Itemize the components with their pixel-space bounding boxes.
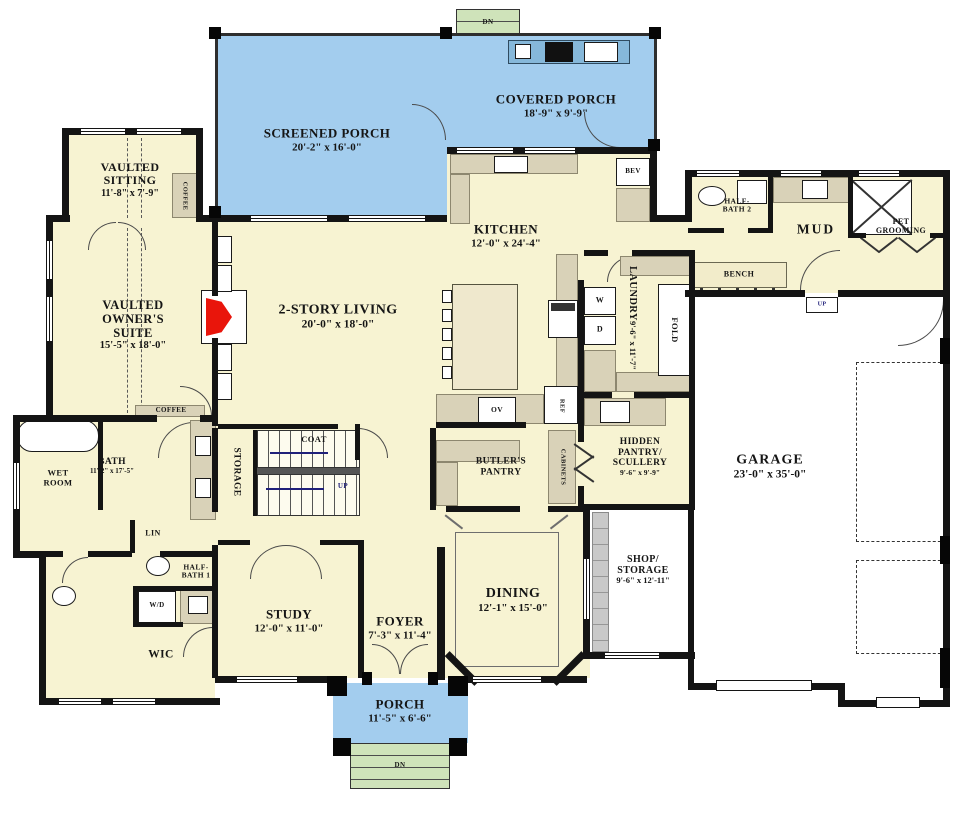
screened-porch-wall	[215, 33, 449, 36]
room-dims: 12'-1" x 15'-0"	[478, 602, 548, 614]
washer-text: W	[596, 297, 604, 306]
pantry-sink	[600, 401, 630, 423]
room-label-foyer: FOYER 7'-3" x 11'-4"	[368, 615, 432, 642]
wall	[355, 424, 360, 460]
room-name: HALF-BATH 2	[714, 198, 760, 215]
label-dryer: D	[597, 326, 603, 335]
room-name: 2-STORY LIVING	[278, 303, 397, 319]
wall	[88, 551, 132, 557]
label-dn-top: DN	[483, 19, 494, 27]
room-name: VAULTED OWNER'S SUITE	[83, 298, 183, 340]
window	[250, 215, 328, 222]
wall	[133, 586, 138, 627]
wall	[436, 422, 526, 428]
butlers-counter	[436, 462, 458, 506]
room-dims: 15'-5" x 18'-0"	[100, 340, 167, 352]
wall	[133, 586, 218, 591]
wall	[218, 540, 250, 545]
laundry-sink	[188, 596, 208, 614]
porch-column	[327, 676, 347, 696]
label-fold: FOLD	[669, 317, 679, 342]
screened-porch-wall	[215, 33, 218, 217]
garage-post	[940, 536, 950, 564]
built-in-shelf	[216, 236, 232, 263]
stair-rail	[257, 468, 360, 474]
mud-sink	[802, 180, 828, 199]
window	[583, 558, 590, 620]
wall	[446, 506, 520, 512]
lin-text: LIN	[145, 530, 160, 539]
room-label-covered-porch: COVERED PORCH 18'-9" x 9'-9"	[496, 93, 616, 120]
wall	[748, 228, 770, 233]
door-jamb	[428, 672, 438, 685]
vanity-sink	[195, 478, 211, 498]
wall	[130, 520, 135, 553]
wall	[688, 510, 694, 652]
built-in-shelf	[216, 344, 232, 371]
storage-text: STORAGE	[231, 447, 242, 496]
built-in-shelf	[216, 373, 232, 400]
wall	[133, 622, 183, 627]
bev-text: BEV	[625, 168, 641, 176]
room-dims: 12'-0" x 11'-0"	[254, 622, 323, 634]
wall	[848, 177, 853, 237]
wall	[430, 428, 436, 510]
label-dn-bottom: DN	[395, 762, 406, 770]
room-label-hidden-pantry: HIDDEN PANTRY/ SCULLERY 9'-6" x 9'-9"	[598, 437, 682, 477]
wall	[838, 290, 950, 297]
wall	[39, 551, 46, 705]
dryer-text: D	[597, 326, 603, 335]
porch-post	[649, 27, 661, 39]
label-ov: OV	[491, 406, 503, 414]
vanity-sink	[195, 436, 211, 456]
room-dims: 18'-9" x 9'-9"	[524, 107, 588, 119]
kitchen-sink	[494, 156, 528, 173]
kitchen-counter	[450, 174, 470, 224]
door-arc	[898, 300, 944, 346]
up-text: UP	[818, 302, 827, 309]
room-name: GARAGE	[736, 453, 803, 469]
room-name: SHOP/ STORAGE	[605, 554, 681, 576]
label-cabinets: CABINETS	[559, 449, 566, 485]
garage-bay-outline	[856, 362, 946, 542]
label-bev: BEV	[625, 168, 641, 176]
room-label-kitchen: KITCHEN 12'-0" x 24'-4"	[416, 223, 596, 250]
wc-toilet	[52, 586, 76, 606]
kitchen-island	[452, 284, 518, 390]
room-label-screened-porch: SCREENED PORCH 20'-2" x 16'-0"	[264, 127, 391, 154]
label-ref: REF	[558, 399, 565, 413]
wall	[584, 250, 608, 256]
room-label-dining: DINING 12'-1" x 15'-0"	[478, 586, 548, 614]
room-dims: 9'-6" x 12'-11"	[616, 576, 669, 586]
room-label-vaulted-sitting: VAULTED SITTING 11'-8" x 7'-9"	[75, 161, 185, 199]
garage-post	[940, 338, 950, 364]
room-label-bath: BATH 11'-2" x 17'-5"	[90, 457, 134, 475]
label-coffee-cabinet: COFFEE	[181, 182, 188, 211]
window	[348, 215, 426, 222]
porch-post	[209, 206, 221, 218]
wall	[848, 233, 866, 238]
label-storage: STORAGE	[231, 447, 242, 496]
island-stool	[442, 347, 452, 360]
wall	[634, 392, 695, 398]
room-name: SCREENED PORCH	[264, 127, 391, 142]
window	[780, 170, 822, 177]
porch-column	[448, 676, 468, 696]
label-wd: W/D	[149, 602, 164, 610]
label-washer: W	[596, 297, 604, 306]
room-dims: 20'-2" x 16'-0"	[292, 141, 362, 153]
wall	[160, 551, 218, 557]
floor-plan: SCREENED PORCH 20'-2" x 16'-0" COVERED P…	[0, 0, 967, 813]
label-bench: BENCH	[724, 271, 754, 280]
garage-bay-outline	[856, 560, 946, 654]
window	[858, 170, 900, 177]
outdoor-fridge	[584, 42, 618, 62]
wall	[943, 177, 950, 707]
room-name: DINING	[486, 586, 541, 602]
wall	[196, 128, 203, 222]
wall	[632, 250, 695, 256]
wall	[39, 551, 63, 557]
room-dims: 11'-8" x 7'-9"	[101, 188, 159, 199]
window	[456, 147, 514, 154]
room-label-wic: WIC	[148, 649, 173, 662]
room-label-mud: MUD	[797, 221, 835, 236]
window	[46, 240, 53, 280]
stair-arrow	[270, 452, 328, 454]
room-name: PORCH	[376, 698, 425, 713]
window	[604, 652, 660, 659]
wall	[253, 430, 257, 516]
room-dims: 11'-5" x 6'-6"	[368, 712, 432, 724]
coffee-text: COFFEE	[156, 407, 187, 415]
dn-text: DN	[395, 762, 406, 770]
window	[58, 698, 102, 705]
room-name: HIDDEN PANTRY/ SCULLERY	[598, 437, 682, 469]
bench-text: BENCH	[724, 271, 754, 280]
wall	[650, 215, 692, 222]
stair-lower-flight	[257, 474, 360, 516]
room-name: HALF-BATH 1	[173, 564, 219, 581]
window	[80, 128, 126, 135]
label-coffee-bar: COFFEE	[156, 407, 187, 415]
garage-side-door	[876, 697, 920, 708]
wall	[685, 290, 805, 297]
wd-text: W/D	[149, 602, 164, 610]
wall	[358, 545, 364, 678]
covered-porch-wall	[654, 33, 657, 149]
room-label-porch: PORCH 11'-5" x 6'-6"	[368, 698, 432, 725]
built-in-shelf	[216, 265, 232, 292]
wall	[650, 147, 657, 220]
ov-text: OV	[491, 406, 503, 414]
door-jamb	[362, 672, 372, 685]
wall	[768, 177, 773, 233]
room-label-study: STUDY 12'-0" x 11'-0"	[254, 608, 323, 635]
room-name: FOYER	[376, 615, 424, 630]
wall	[62, 128, 69, 222]
room-dims: 20'-0" x 18'-0"	[302, 318, 375, 331]
porch-column	[449, 738, 467, 756]
label-up-stairs: UP	[338, 483, 348, 491]
room-name: LAUNDRY	[626, 266, 638, 321]
wall	[218, 424, 338, 429]
window	[696, 170, 740, 177]
wall	[212, 222, 218, 296]
room-name: COVERED PORCH	[496, 93, 616, 108]
window	[13, 462, 20, 510]
room-label-laundry: LAUNDRY 9'-6" x 11'-7"	[626, 266, 638, 370]
label-coat: COAT	[301, 435, 327, 445]
freestanding-tub	[17, 420, 99, 452]
room-name: STUDY	[266, 608, 312, 623]
room-label-pet-grooming: PET GROOMING	[869, 218, 933, 236]
hb1-toilet	[146, 556, 170, 576]
wall	[688, 228, 724, 233]
window	[112, 698, 156, 705]
porch-post	[440, 27, 452, 39]
room-label-butlers-pantry: BUTLER'S PANTRY	[465, 456, 537, 477]
room-name: VAULTED SITTING	[75, 161, 185, 188]
room-dims: 9'-6" x 11'-7"	[627, 321, 637, 370]
wall	[212, 338, 218, 426]
coffee-text: COFFEE	[181, 182, 188, 211]
room-label-half-bath-1: HALF-BATH 1	[173, 564, 219, 581]
porch-post	[648, 139, 660, 151]
room-label-wet-room: WET ROOM	[37, 468, 79, 487]
wall	[53, 415, 157, 422]
garage-door	[716, 680, 812, 691]
room-name: BUTLER'S PANTRY	[465, 456, 537, 477]
room-label-shop: SHOP/ STORAGE 9'-6" x 12'-11"	[605, 554, 681, 586]
wall	[578, 280, 584, 398]
room-dims: 9'-6" x 9'-9"	[620, 469, 660, 477]
coat-text: COAT	[301, 435, 327, 445]
up-text: UP	[338, 483, 348, 491]
window	[136, 128, 182, 135]
wall	[212, 428, 218, 512]
wall	[578, 504, 695, 510]
laundry-counter	[584, 350, 616, 392]
room-name: WET ROOM	[37, 468, 79, 487]
outdoor-grill	[545, 42, 573, 62]
label-up-mud: UP	[818, 302, 827, 309]
room-name: PET GROOMING	[869, 218, 933, 236]
porch-post	[209, 27, 221, 39]
room-dims: 7'-3" x 11'-4"	[368, 629, 432, 641]
bev-cabinet	[616, 188, 650, 222]
covered-porch-wall	[447, 33, 657, 36]
fold-text: FOLD	[669, 317, 679, 342]
window	[46, 296, 53, 342]
room-name: MUD	[797, 221, 835, 236]
label-lin: LIN	[145, 530, 160, 539]
stair-arrow	[266, 488, 324, 490]
room-name: WIC	[148, 649, 173, 662]
dn-text: DN	[483, 19, 494, 27]
ref-text: REF	[558, 399, 565, 413]
window	[472, 676, 542, 683]
room-label-owners-suite: VAULTED OWNER'S SUITE 15'-5" x 18'-0"	[83, 298, 183, 352]
room-name: KITCHEN	[474, 223, 538, 238]
room-dims: 12'-0" x 24'-4"	[471, 237, 541, 249]
wall	[437, 547, 445, 680]
garage-post	[940, 648, 950, 688]
wall	[578, 398, 584, 442]
window	[524, 147, 576, 154]
room-label-garage: GARAGE 23'-0" x 35'-0"	[734, 453, 807, 482]
range-hood	[551, 303, 575, 311]
room-label-half-bath-2: HALF-BATH 2	[714, 198, 760, 215]
wall	[200, 415, 218, 422]
cabinets-text: CABINETS	[559, 449, 566, 485]
room-dims: 11'-2" x 17'-5"	[90, 467, 134, 475]
island-stool	[442, 366, 452, 379]
outdoor-sink	[515, 44, 531, 59]
window	[236, 676, 298, 683]
porch-column	[333, 738, 351, 756]
room-dims: 23'-0" x 35'-0"	[734, 468, 807, 481]
island-stool	[442, 290, 452, 303]
room-label-living: 2-STORY LIVING 20'-0" x 18'-0"	[228, 303, 448, 332]
